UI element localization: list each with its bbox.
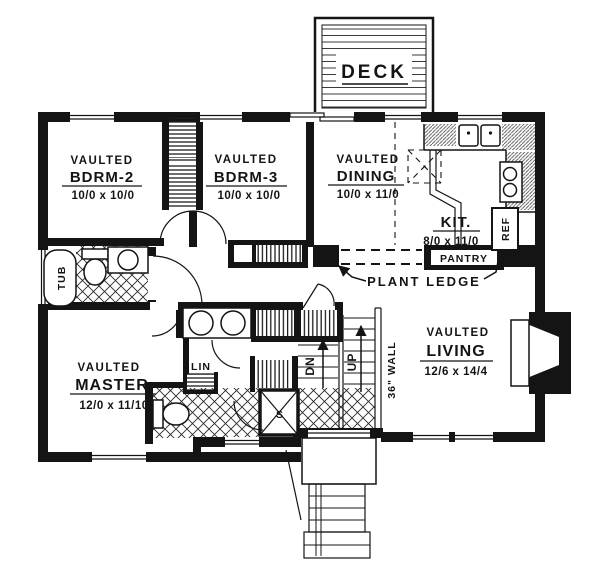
shower: S [260, 390, 298, 435]
dressing-vanity [183, 308, 251, 338]
refrigerator: REF [492, 208, 518, 250]
linen-closet: LIN [187, 361, 214, 390]
hall-bath-door [153, 256, 202, 305]
svg-text:8/0 x 11/0: 8/0 x 11/0 [423, 236, 479, 248]
dn-label: DN [303, 356, 317, 375]
up-label: UP [345, 353, 359, 372]
bath-passage-door [212, 340, 240, 368]
front-door-gap [308, 430, 370, 438]
ref-label: REF [500, 217, 512, 241]
pantry-label: PANTRY [440, 253, 488, 265]
deck-label: DECK [341, 62, 407, 83]
dressing-closet-1 [256, 310, 293, 336]
svg-text:MASTER: MASTER [75, 377, 149, 394]
svg-text:VAULTED: VAULTED [70, 155, 133, 167]
window-living-2 [455, 432, 493, 442]
svg-text:12/0 x 11/10: 12/0 x 11/10 [79, 400, 148, 412]
bdrm3-label: VAULTED BDRM-3 10/0 x 10/0 [206, 154, 287, 202]
bdrm2-door [160, 211, 193, 244]
window-kitchen-sink [458, 112, 502, 122]
hearth [511, 320, 529, 386]
foyer-floor [298, 388, 375, 429]
svg-text:VAULTED: VAULTED [336, 154, 399, 166]
floor-plan: DECK [0, 0, 600, 564]
svg-text:PANTRY: PANTRY [440, 253, 488, 265]
svg-text:KIT.: KIT. [441, 214, 472, 231]
window-bdrm2 [70, 112, 114, 122]
toilet-master [153, 400, 189, 428]
plant-ledge-arrow [339, 266, 366, 281]
window-master [92, 452, 146, 462]
window-deck-right [385, 112, 421, 122]
svg-text:LIVING: LIVING [426, 343, 485, 360]
wall36-label: 36" WALL [386, 341, 398, 398]
stove [500, 162, 522, 202]
kitchen-label: KIT. 8/0 x 11/0 [423, 214, 480, 248]
bdrm2-closet [169, 114, 196, 158]
counter-corner [502, 124, 535, 150]
deck: DECK [315, 18, 433, 115]
tub-label: TUB [56, 266, 68, 291]
svg-text:BDRM-2: BDRM-2 [70, 169, 134, 186]
bdrm3-closet-side [169, 164, 196, 208]
svg-text:VAULTED: VAULTED [214, 154, 277, 166]
deck-sliding-door [290, 112, 354, 122]
window-bdrm3 [200, 112, 242, 122]
lin-label: LIN [191, 361, 211, 373]
up-flight [344, 318, 375, 384]
bdrm2-label: VAULTED BDRM-2 10/0 x 10/0 [62, 155, 142, 202]
master-wardrobe [256, 360, 291, 388]
bdrm3-wardrobe [257, 245, 301, 262]
plant-ledge-label: PLANT LEDGE [367, 274, 481, 289]
vanity-sink [108, 247, 148, 273]
entry-landing [302, 438, 376, 484]
svg-text:BDRM-3: BDRM-3 [214, 169, 278, 186]
svg-text:VAULTED: VAULTED [426, 327, 489, 339]
kitchen-sink [459, 125, 500, 146]
svg-text:DINING: DINING [337, 168, 396, 185]
coat-closet [302, 310, 336, 336]
svg-text:12/6 x 14/4: 12/6 x 14/4 [424, 366, 487, 378]
shower-label: S [276, 409, 284, 421]
hall-bath-door-gap [148, 256, 156, 300]
toilet [82, 249, 108, 285]
svg-text:VAULTED: VAULTED [77, 362, 140, 374]
master-label: VAULTED MASTER 12/0 x 11/10 [70, 362, 156, 412]
fireplace [511, 312, 571, 394]
living-label: VAULTED LIVING 12/6 x 14/4 [420, 327, 493, 378]
window-living-1 [413, 432, 449, 442]
svg-text:10/0 x 10/0: 10/0 x 10/0 [71, 190, 134, 202]
counter-left [424, 124, 456, 146]
coat-closet-door-gap [303, 302, 335, 310]
svg-text:10/0 x 10/0: 10/0 x 10/0 [217, 190, 280, 202]
master-door-gap [150, 302, 178, 310]
bdrm3-door [193, 211, 226, 244]
floor-plan-drawing: DECK [0, 0, 600, 564]
window-master-bath [225, 437, 259, 447]
dining-label: VAULTED DINING 10/0 x 11/0 [328, 154, 404, 201]
svg-text:10/0 x 11/0: 10/0 x 11/0 [337, 189, 399, 201]
